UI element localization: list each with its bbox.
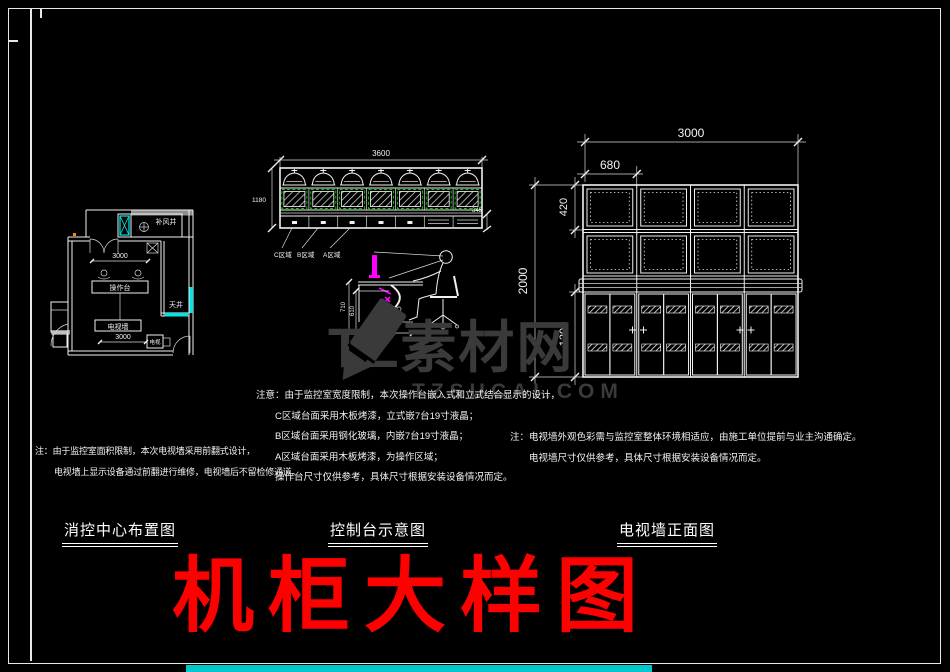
- dim-tvwall-total-width: 3000: [577, 126, 806, 185]
- sight-lines: [374, 252, 443, 278]
- bottom-cyan-bar: [186, 665, 652, 672]
- svg-text:3000: 3000: [112, 253, 128, 260]
- svg-text:3600: 3600: [372, 149, 390, 158]
- tv-screen: [695, 236, 741, 273]
- console-body: [280, 168, 482, 228]
- dim-3000-top: 3000: [90, 253, 150, 263]
- console-plan-label: 操作台: [110, 283, 131, 292]
- zone-c-label: C区域: [274, 250, 292, 259]
- cabinet-door: [771, 294, 796, 375]
- console-title: 控制台示意图: [303, 519, 453, 547]
- shaft-label: 天井: [169, 300, 183, 309]
- zone-b-label: B区域: [297, 250, 315, 259]
- svg-text:1180: 1180: [252, 197, 266, 204]
- note-line: 注意：由于监控室宽度限制，本次操作台嵌入式和立式结合显示的设计，: [256, 386, 560, 407]
- monitor-unit: [369, 169, 394, 209]
- tv-wall-note: 注：电视墙外观色彩需与监控室整体环境相适应，由施工单位提前与业主沟通确定。 电视…: [510, 427, 862, 469]
- svg-text:2000: 2000: [516, 267, 530, 294]
- monitor-unit: [311, 169, 336, 209]
- svg-text:3000: 3000: [115, 334, 131, 341]
- note-line: 注：电视墙外观色彩需与监控室整体环境相适应，由施工单位提前与业主沟通确定。: [510, 427, 862, 448]
- tv-screen: [695, 189, 741, 226]
- dim-tvwall-row-height: 420: [558, 177, 583, 238]
- frame-tick: [40, 9, 42, 18]
- workstation-symbol: [98, 270, 110, 279]
- tv-wall-plan-label: 电视墙: [108, 322, 129, 331]
- entry-door: [73, 233, 118, 253]
- monitor-unit: [397, 169, 422, 209]
- dim-console-height: 1180: [252, 164, 276, 232]
- side-monitor: [369, 255, 391, 302]
- closet-door-arc: [51, 324, 68, 346]
- shaft-window-right: [190, 287, 194, 313]
- svg-text:3000: 3000: [678, 126, 705, 140]
- svg-text:电视: 电视: [149, 338, 161, 346]
- tv-screen: [748, 236, 794, 273]
- frame-tick: [9, 40, 18, 42]
- svg-text:420: 420: [558, 198, 570, 216]
- note-line: 操作台尺寸仅供参考，具体尺寸根据安装设备情况而定。: [256, 468, 560, 489]
- cabinet-door: [664, 294, 689, 375]
- cabinet-door: [693, 294, 718, 375]
- monitor-unit: [340, 169, 365, 209]
- tv-screen: [587, 189, 633, 226]
- shaft-window-bottom: [165, 313, 188, 317]
- cad-drawing-sheet: TZ素材网 TZSUCAI.COM: [0, 0, 950, 672]
- floor-plan-title: 消控中心布置图: [45, 519, 195, 547]
- drawer-handles: [292, 221, 412, 224]
- workstation-symbol: [132, 270, 144, 279]
- note-line: 电视墙尺寸仅供参考，具体尺寸根据安装设备情况而定。: [510, 448, 862, 469]
- cabinet-door: [746, 294, 771, 375]
- equipment-box: [147, 243, 158, 253]
- dim-3000-bottom: 3000: [98, 334, 148, 344]
- tv-wall-title: 电视墙正面图: [592, 519, 742, 547]
- monitor-unit: [282, 169, 307, 209]
- svg-text:680: 680: [600, 158, 620, 172]
- floor-plan-drawing: 补风井 天井 3000 操作台: [48, 183, 268, 411]
- dim-console-width: 3600: [274, 149, 488, 168]
- zone-leader-lines: [282, 228, 350, 248]
- monitor-unit: [426, 169, 451, 209]
- monitor-unit: [455, 169, 480, 209]
- tv-box: 电视: [147, 335, 170, 348]
- sheet-margin-line: [30, 9, 32, 661]
- tv-screen: [641, 236, 687, 273]
- duct-window: [120, 216, 129, 235]
- cabinet-door: [717, 294, 742, 375]
- watermark-pencil-logo: [328, 298, 412, 398]
- tv-screen: [748, 189, 794, 226]
- fan-symbol: [140, 223, 149, 232]
- main-title-cabinet-detail: 机柜大样图: [172, 556, 652, 638]
- air-shaft-label: 补风井: [156, 217, 177, 226]
- dim-tvwall-panel-width: 680: [577, 158, 643, 185]
- note-line: C区域台面采用木板烤漆，立式嵌7台19寸液晶；: [256, 407, 560, 428]
- tv-screen: [587, 236, 633, 273]
- tv-screen: [641, 189, 687, 226]
- room-door: [173, 336, 190, 353]
